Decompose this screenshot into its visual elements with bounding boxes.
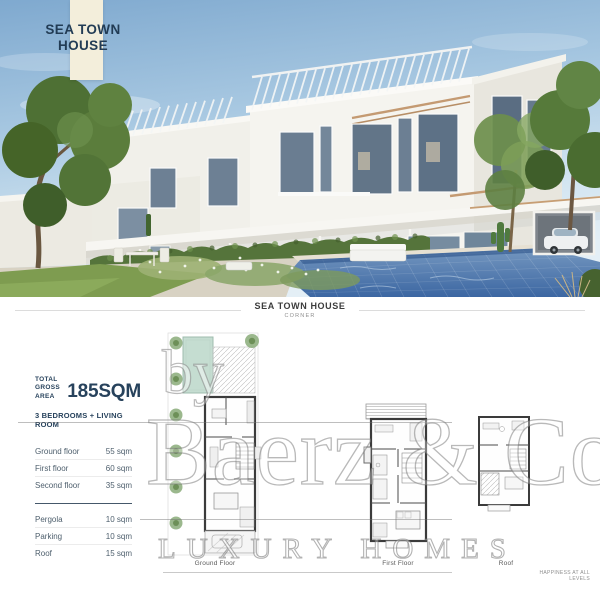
banner-line2: HOUSE [36,38,130,54]
outdoor-sofa [350,244,406,261]
first-floor-plan [364,404,426,548]
brochure-page: SEA TOWN HOUSE SEA TOWN HOUSE CORNER TOT… [0,0,600,600]
floor-plan-drawings [0,297,600,600]
ground-floor-plan [168,333,261,555]
plan-label-ground: Ground Floor [171,560,259,567]
plan-label-first: First Floor [368,560,428,567]
roof-plan [479,417,529,511]
sun-lounger [226,262,252,270]
project-banner-title: SEA TOWN HOUSE [36,22,130,55]
plan-label-roof: Roof [486,560,526,567]
balcony-rail [278,192,370,196]
banner-line1: SEA TOWN [36,22,130,38]
floor-plans [0,297,600,600]
developer-slogan: HAPPINESS AT ALL LEVELS [528,570,590,582]
